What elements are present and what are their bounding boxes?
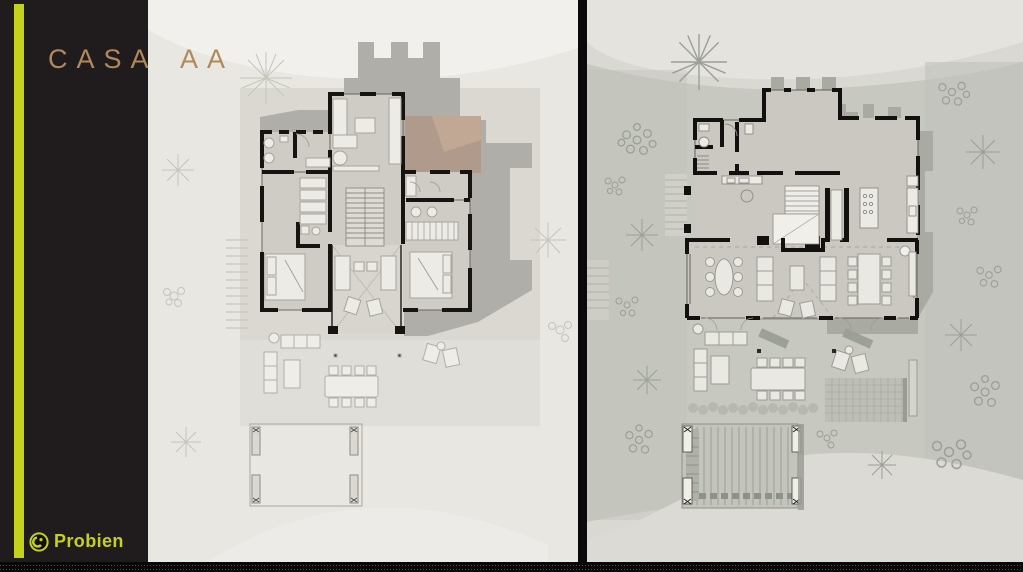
floor-plan-right-drawing [587,0,1023,562]
hatched-patio [825,378,907,422]
pergola [682,424,804,510]
floor-plan-left-drawing [148,0,578,562]
floor-plan-right [587,0,1023,562]
roof-terrace [405,116,481,173]
dotted-line [0,565,1023,566]
panel-divider [578,0,587,562]
page-title: CASA AA [48,44,234,75]
dotted-line [0,569,1023,570]
probien-logo-icon [29,532,49,552]
floor-plan-left [148,0,578,562]
brand-logo: Probien [29,531,124,552]
brand-name: Probien [54,531,124,552]
bottom-strip [0,562,1023,572]
slide: CASA AA [0,0,1023,572]
title-sidebar [0,0,148,562]
accent-stripe [14,4,24,558]
stairs [346,188,384,246]
